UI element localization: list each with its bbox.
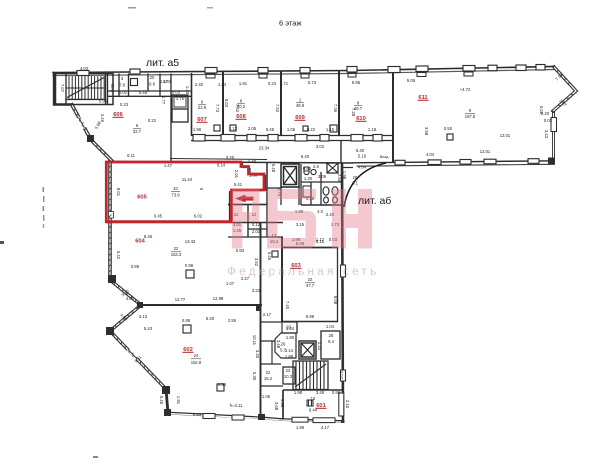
svg-text:6.40: 6.40 (301, 154, 310, 159)
svg-text:0.89: 0.89 (131, 264, 140, 269)
svg-text:1.75: 1.75 (176, 96, 185, 101)
svg-text:1.24: 1.24 (218, 82, 227, 87)
svg-text:22.9: 22.9 (198, 105, 207, 110)
svg-text:1.30: 1.30 (304, 176, 313, 181)
svg-text:0.02: 0.02 (544, 118, 553, 123)
svg-text:60.5: 60.5 (110, 84, 115, 93)
svg-text:1.40: 1.40 (248, 159, 257, 164)
svg-text:28: 28 (353, 175, 358, 180)
svg-text:1.89: 1.89 (285, 354, 294, 359)
svg-text:13.01: 13.01 (500, 133, 511, 138)
svg-text:5.19: 5.19 (358, 154, 367, 159)
svg-text:6.1: 6.1 (352, 181, 358, 186)
svg-text:6 этаж: 6 этаж (279, 19, 301, 28)
svg-text:3.08: 3.08 (274, 402, 279, 411)
svg-text:10.3: 10.3 (284, 374, 293, 379)
svg-text:2.14: 2.14 (285, 348, 294, 353)
svg-text:5.42: 5.42 (116, 251, 121, 260)
svg-text:лит. аб: лит. аб (358, 195, 391, 207)
svg-text:7.8: 7.8 (119, 83, 125, 88)
svg-text:7.42: 7.42 (235, 104, 240, 113)
svg-text:1.47: 1.47 (164, 163, 173, 168)
svg-text:2.56: 2.56 (337, 174, 342, 183)
svg-text:7.52: 7.52 (275, 104, 280, 113)
svg-text:1.40: 1.40 (185, 86, 190, 95)
svg-text:1.07: 1.07 (226, 281, 235, 286)
svg-text:5.40: 5.40 (159, 396, 164, 405)
svg-text:3.40: 3.40 (255, 350, 260, 359)
svg-text:5.41: 5.41 (234, 182, 243, 187)
svg-text:32.7: 32.7 (133, 129, 142, 134)
svg-text:3.13: 3.13 (139, 314, 148, 319)
svg-text:7.40: 7.40 (285, 301, 290, 310)
svg-text:2.17: 2.17 (263, 312, 272, 317)
svg-text:0.23: 0.23 (268, 81, 277, 86)
svg-text:6.02: 6.02 (194, 214, 203, 219)
svg-text:23.34: 23.34 (259, 146, 270, 151)
svg-text:лит. а5: лит. а5 (146, 57, 179, 69)
svg-text:5.05: 5.05 (407, 78, 416, 83)
svg-text:73.9: 73.9 (171, 193, 180, 198)
svg-text:1.04: 1.04 (326, 324, 335, 329)
svg-text:6.96: 6.96 (352, 80, 361, 85)
svg-text:5.03: 5.03 (172, 90, 181, 95)
svg-text:22: 22 (266, 370, 271, 375)
svg-text:1.98: 1.98 (296, 425, 305, 430)
svg-text:6.15: 6.15 (316, 239, 325, 244)
svg-text:0.22: 0.22 (307, 127, 316, 132)
svg-text:2.6: 2.6 (313, 164, 319, 169)
svg-text:10: 10 (173, 186, 178, 191)
svg-text:1.84: 1.84 (286, 326, 295, 331)
svg-text:4.46: 4.46 (100, 114, 105, 123)
svg-text:604: 604 (135, 239, 145, 245)
svg-text:0.43: 0.43 (193, 412, 202, 417)
svg-text:7.28: 7.28 (351, 108, 356, 117)
svg-text:6.11: 6.11 (127, 153, 136, 158)
svg-text:6.48: 6.48 (139, 90, 148, 95)
svg-text:5.35: 5.35 (252, 372, 257, 381)
svg-text:15.2: 15.2 (264, 376, 273, 381)
svg-text:1.15: 1.15 (326, 127, 335, 132)
svg-text:1.91: 1.91 (239, 81, 248, 86)
svg-text:1.98: 1.98 (280, 399, 285, 408)
svg-text:3.58: 3.58 (424, 127, 429, 136)
svg-text:+4.72: +4.72 (460, 87, 471, 92)
svg-text:3.71: 3.71 (280, 81, 289, 86)
svg-text:h=3.11: h=3.11 (230, 403, 243, 408)
svg-text:1.98: 1.98 (294, 390, 303, 395)
svg-text:5.48: 5.48 (271, 164, 276, 173)
svg-text:605: 605 (137, 195, 147, 201)
svg-text:0.98: 0.98 (185, 263, 194, 268)
svg-text:6.40: 6.40 (356, 148, 365, 153)
svg-text:0.45: 0.45 (154, 214, 163, 219)
svg-text:1.18: 1.18 (368, 127, 377, 132)
svg-text:1.05: 1.05 (287, 127, 296, 132)
svg-text:10.11: 10.11 (252, 335, 257, 346)
svg-text:0.96: 0.96 (99, 99, 108, 104)
svg-text:0.83: 0.83 (236, 248, 245, 253)
svg-text:0.23: 0.23 (120, 102, 129, 107)
svg-text:12.77: 12.77 (175, 297, 186, 302)
svg-text:7.73: 7.73 (215, 104, 220, 113)
svg-text:0.98: 0.98 (332, 390, 341, 395)
svg-text:28: 28 (329, 333, 334, 338)
svg-text:1.47: 1.47 (160, 79, 169, 84)
svg-text:6.9: 6.9 (149, 82, 155, 87)
svg-text:0.50: 0.50 (444, 126, 453, 131)
svg-text:4.03: 4.03 (80, 66, 89, 71)
svg-text:7.36: 7.36 (333, 104, 338, 113)
svg-text:5.98: 5.98 (306, 314, 315, 319)
svg-text:2.01: 2.01 (234, 170, 239, 179)
svg-text:3.48: 3.48 (276, 340, 281, 349)
svg-text:Вход: Вход (380, 155, 389, 159)
svg-text:3.43: 3.43 (544, 130, 549, 139)
svg-text:8.08: 8.08 (333, 296, 338, 305)
svg-text:3.48: 3.48 (316, 390, 325, 395)
svg-text:4.0: 4.0 (317, 209, 323, 214)
svg-text:7.07: 7.07 (60, 84, 65, 93)
svg-text:5.43: 5.43 (144, 326, 153, 331)
svg-text:2.10: 2.10 (345, 400, 350, 409)
svg-text:24: 24 (194, 353, 199, 358)
svg-text:3.07: 3.07 (339, 371, 344, 380)
svg-text:22: 22 (174, 246, 179, 251)
svg-text:2.40: 2.40 (195, 82, 204, 87)
svg-text:13.01: 13.01 (480, 149, 491, 154)
svg-text:152.8: 152.8 (191, 360, 202, 365)
svg-text:20: 20 (150, 75, 155, 80)
svg-text:1.90: 1.90 (286, 335, 295, 340)
svg-text:3.20: 3.20 (226, 155, 235, 160)
svg-text:1.12: 1.12 (229, 126, 238, 131)
svg-text:5.01: 5.01 (119, 90, 128, 95)
svg-text:2.10: 2.10 (317, 342, 322, 351)
svg-text:4.00: 4.00 (126, 296, 135, 301)
svg-text:1.98: 1.98 (193, 127, 202, 132)
svg-text:6.40: 6.40 (206, 316, 215, 321)
svg-text:4.04: 4.04 (426, 152, 435, 157)
svg-text:2.02: 2.02 (252, 229, 261, 234)
svg-text:48.9: 48.9 (296, 103, 305, 108)
svg-text:0.22: 0.22 (148, 118, 157, 123)
svg-text:47.7: 47.7 (306, 283, 315, 288)
svg-text:8.01: 8.01 (116, 188, 121, 197)
svg-text:5.45: 5.45 (266, 127, 275, 132)
svg-text:11.44: 11.44 (182, 177, 193, 182)
svg-text:1.06: 1.06 (262, 394, 271, 399)
svg-text:0.56: 0.56 (218, 382, 227, 387)
svg-text:1.91: 1.91 (176, 396, 181, 405)
svg-text:3.23: 3.23 (252, 288, 261, 293)
svg-text:4.77: 4.77 (161, 96, 166, 105)
svg-text:0.88: 0.88 (182, 318, 191, 323)
svg-text:4.84: 4.84 (358, 165, 367, 170)
svg-text:9.03: 9.03 (224, 99, 229, 108)
svg-text:187.6: 187.6 (465, 114, 476, 119)
svg-text:8.4: 8.4 (328, 339, 334, 344)
svg-text:8.46: 8.46 (144, 234, 153, 239)
svg-text:5.73: 5.73 (308, 80, 317, 85)
svg-text:0.95: 0.95 (303, 166, 312, 171)
svg-text:5.45: 5.45 (267, 252, 272, 261)
svg-text:0.12: 0.12 (252, 222, 261, 227)
svg-text:2.55: 2.55 (228, 318, 237, 323)
svg-text:3.15: 3.15 (296, 222, 305, 227)
svg-text:12.98: 12.98 (213, 296, 224, 301)
svg-text:6.02: 6.02 (539, 106, 544, 115)
svg-text:153.3: 153.3 (171, 252, 182, 257)
svg-text:4.17: 4.17 (321, 425, 330, 430)
svg-text:2.05: 2.05 (248, 126, 257, 131)
svg-text:3.02: 3.02 (316, 144, 325, 149)
svg-text:13.43: 13.43 (185, 239, 196, 244)
svg-text:22: 22 (286, 368, 291, 373)
svg-text:Федеральная сеть: Федеральная сеть (227, 264, 379, 278)
svg-text:3.05: 3.05 (318, 174, 327, 179)
